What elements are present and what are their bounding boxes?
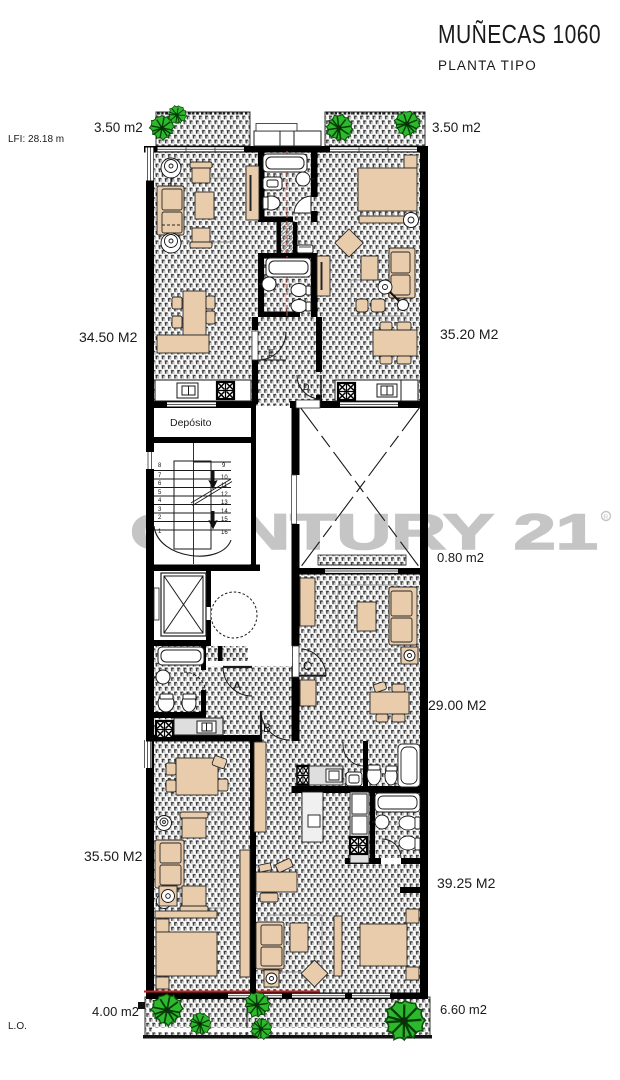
svg-text:PLANTA TIPO: PLANTA TIPO	[438, 58, 537, 73]
svg-text:16: 16	[221, 530, 228, 536]
svg-text:13: 13	[221, 500, 228, 506]
svg-text:A: A	[233, 679, 241, 693]
svg-text:D: D	[303, 382, 310, 392]
svg-text:12: 12	[221, 492, 228, 498]
svg-text:35.20 M2: 35.20 M2	[440, 326, 499, 342]
svg-text:39.25 M2: 39.25 M2	[437, 875, 496, 891]
svg-text:35.50 M2: 35.50 M2	[84, 848, 143, 864]
svg-text:4.00 m2: 4.00 m2	[92, 1004, 139, 1019]
svg-text:15: 15	[221, 517, 228, 523]
svg-text:B: B	[263, 721, 271, 735]
svg-text:6.60 m2: 6.60 m2	[440, 1002, 487, 1017]
svg-text:L.O.: L.O.	[8, 1021, 27, 1032]
svg-text:14: 14	[221, 509, 228, 515]
svg-text:LFI: 28.18 m: LFI: 28.18 m	[8, 134, 64, 145]
svg-text:11: 11	[221, 483, 228, 489]
svg-text:0.80 m2: 0.80 m2	[437, 550, 484, 565]
svg-text:R: R	[604, 514, 609, 521]
svg-text:Depósito: Depósito	[170, 417, 212, 429]
svg-text:29.00 M2: 29.00 M2	[428, 697, 487, 713]
svg-text:3.50 m2: 3.50 m2	[94, 120, 143, 135]
svg-text:10: 10	[221, 475, 228, 481]
svg-text:C: C	[303, 659, 312, 673]
svg-text:E: E	[268, 348, 274, 358]
svg-text:3.50 m2: 3.50 m2	[432, 120, 481, 135]
svg-text:34.50 M2: 34.50 M2	[79, 329, 138, 345]
svg-text:MUÑECAS 1060: MUÑECAS 1060	[438, 19, 601, 49]
